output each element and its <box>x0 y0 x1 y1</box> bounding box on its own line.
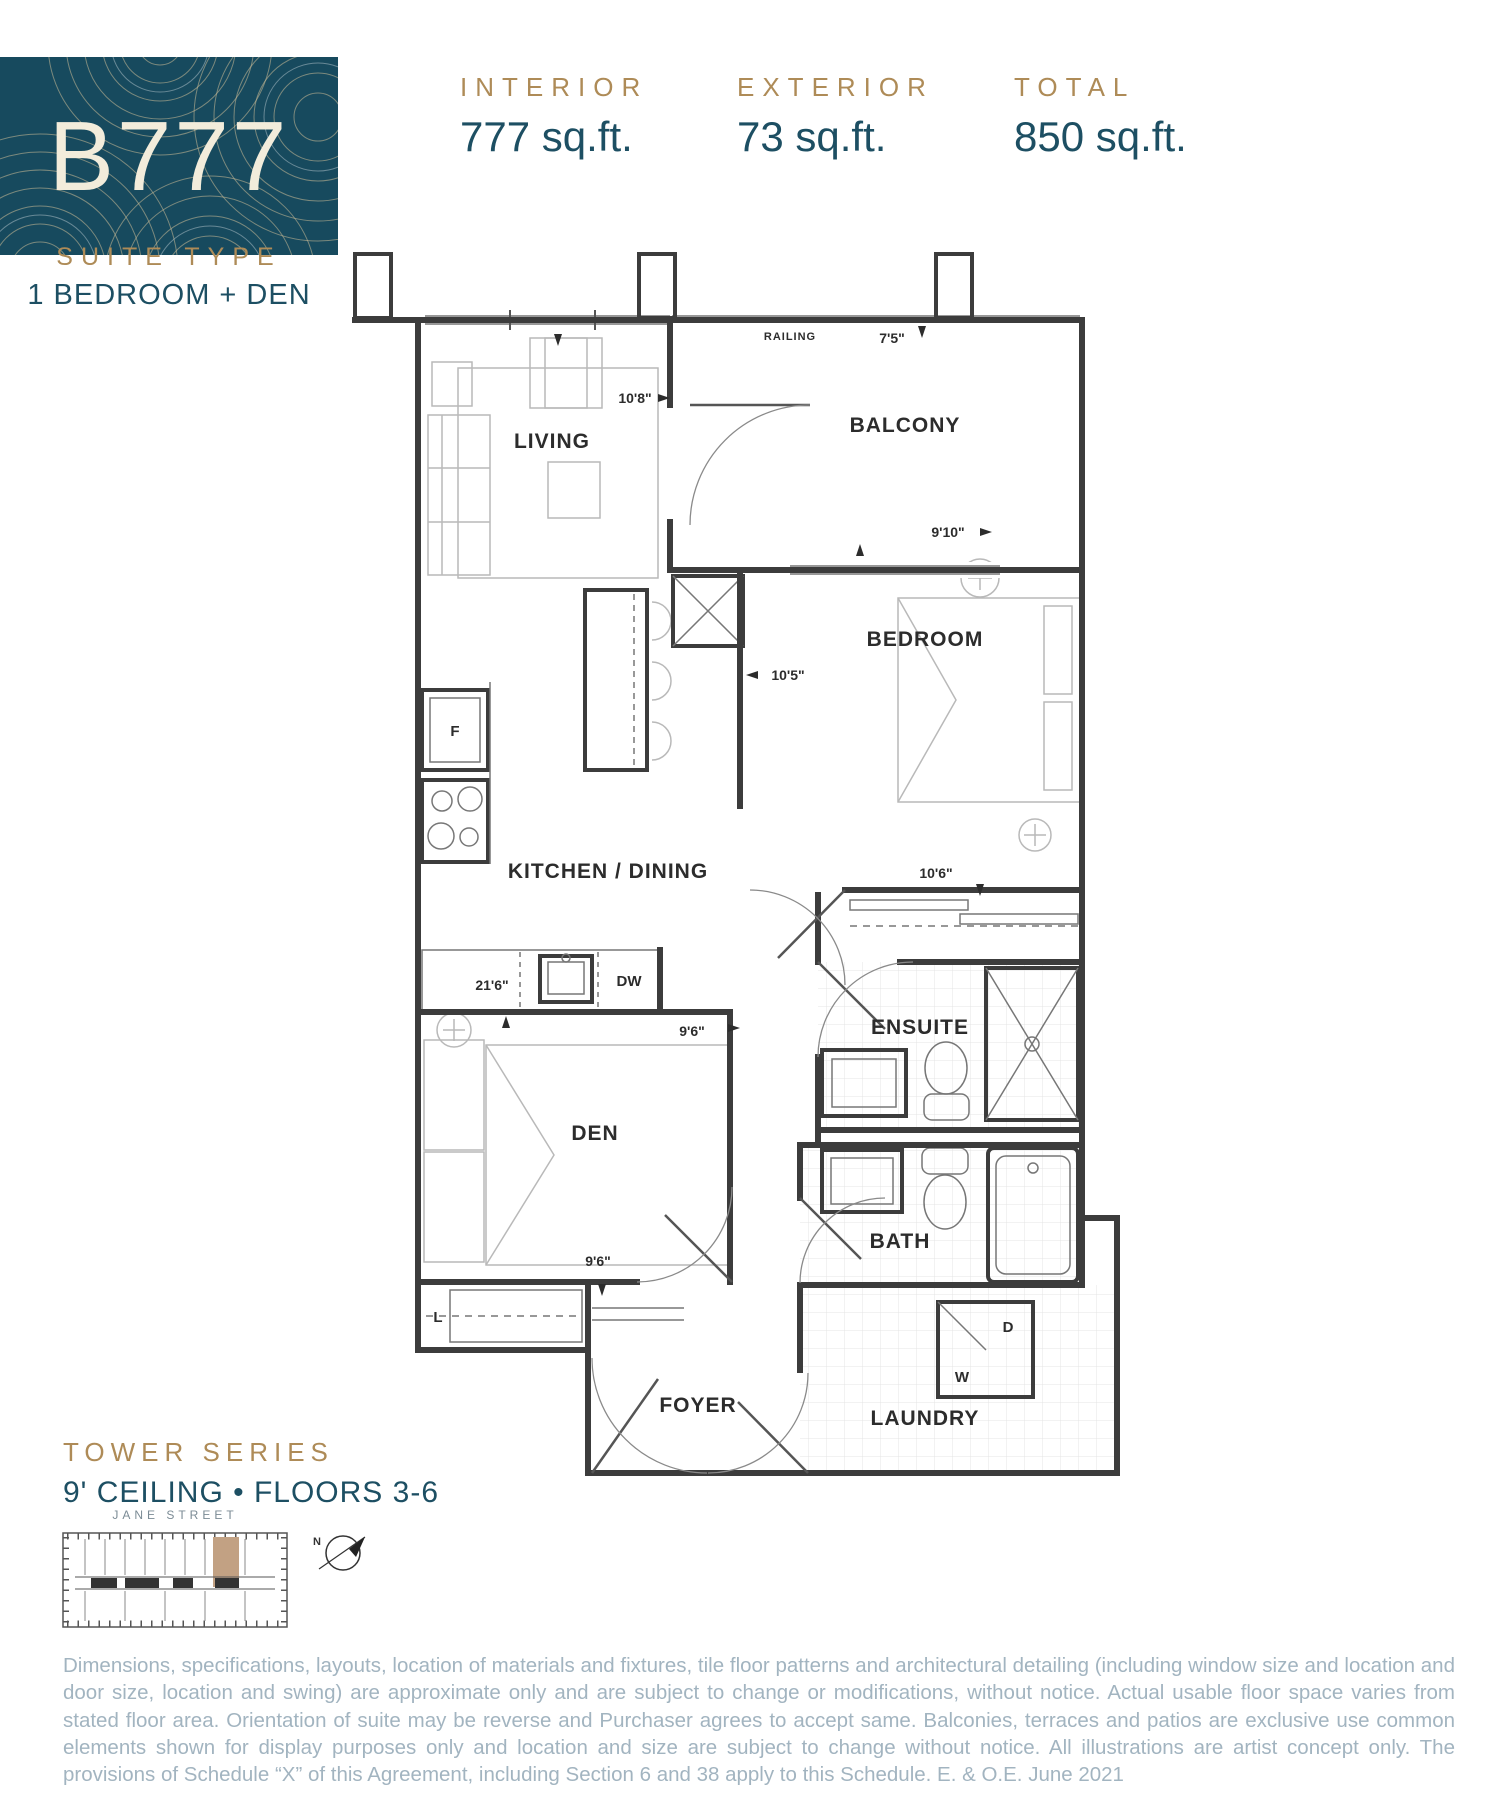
building-footprint <box>63 1533 287 1627</box>
dim-bedroom-closet: 10'6" <box>919 865 952 881</box>
railing-label: RAILING <box>764 331 816 343</box>
series-label: TOWER SERIES <box>63 1437 439 1468</box>
dryer-label: D <box>1003 1319 1014 1336</box>
stat-total-value: 850 sq.ft. <box>1014 113 1254 161</box>
stat-exterior-value: 73 sq.ft. <box>737 113 1014 161</box>
area-stats: INTERIOR 777 sq.ft. EXTERIOR 73 sq.ft. T… <box>460 72 1254 161</box>
unit-code: B777 <box>0 57 338 255</box>
keyplan: JANE STREET <box>55 1505 385 1645</box>
room-label-laundry: LAUNDRY <box>871 1407 980 1430</box>
floor-plan: LIVING BALCONY BEDROOM KITCHEN / DINING … <box>340 250 1200 1480</box>
suite-type-value: 1 BEDROOM + DEN <box>0 279 338 312</box>
street-label: JANE STREET <box>112 1508 237 1522</box>
dim-bedroom-width: 10'5" <box>771 667 804 683</box>
dim-den-length: 9'6" <box>585 1253 611 1269</box>
stat-interior-value: 777 sq.ft. <box>460 113 737 161</box>
dishwasher-label: DW <box>617 973 643 990</box>
room-label-balcony: BALCONY <box>850 414 961 437</box>
dim-balcony-depth: 7'5" <box>879 330 905 346</box>
dim-den-width: 9'6" <box>679 1023 705 1039</box>
room-label-bath: BATH <box>870 1230 931 1253</box>
stat-total: TOTAL 850 sq.ft. <box>1014 72 1254 161</box>
tower-series-block: TOWER SERIES 9' CEILING • FLOORS 3-6 <box>63 1437 439 1510</box>
stat-interior: INTERIOR 777 sq.ft. <box>460 72 737 161</box>
floorplan-sheet: B777 SUITE TYPE 1 BEDROOM + DEN INTERIOR… <box>0 0 1500 1800</box>
linen-closet-label: L <box>433 1309 442 1326</box>
stat-exterior-label: EXTERIOR <box>737 72 1014 103</box>
room-label-kitchen-dining: KITCHEN / DINING <box>508 860 708 883</box>
dim-living-width: 10'8" <box>618 390 651 406</box>
suite-type-block: SUITE TYPE 1 BEDROOM + DEN <box>0 243 338 312</box>
stat-interior-label: INTERIOR <box>460 72 737 103</box>
room-label-den: DEN <box>571 1122 618 1145</box>
stat-exterior: EXTERIOR 73 sq.ft. <box>737 72 1014 161</box>
dim-balcony-width: 9'10" <box>931 524 964 540</box>
fridge-label: F <box>450 723 459 740</box>
compass-icon: N <box>313 1536 365 1570</box>
compass-north-label: N <box>313 1536 321 1548</box>
washer-label: W <box>955 1369 970 1386</box>
room-label-ensuite: ENSUITE <box>871 1016 969 1039</box>
room-label-bedroom: BEDROOM <box>867 628 984 651</box>
unit-logo-tile: B777 <box>0 57 338 255</box>
stat-total-label: TOTAL <box>1014 72 1254 103</box>
legal-disclaimer: Dimensions, specifications, layouts, loc… <box>63 1652 1455 1788</box>
room-label-foyer: FOYER <box>659 1394 736 1417</box>
suite-type-label: SUITE TYPE <box>0 243 338 272</box>
room-label-living: LIVING <box>514 430 590 453</box>
dim-kitchen-length: 21'6" <box>475 977 508 993</box>
